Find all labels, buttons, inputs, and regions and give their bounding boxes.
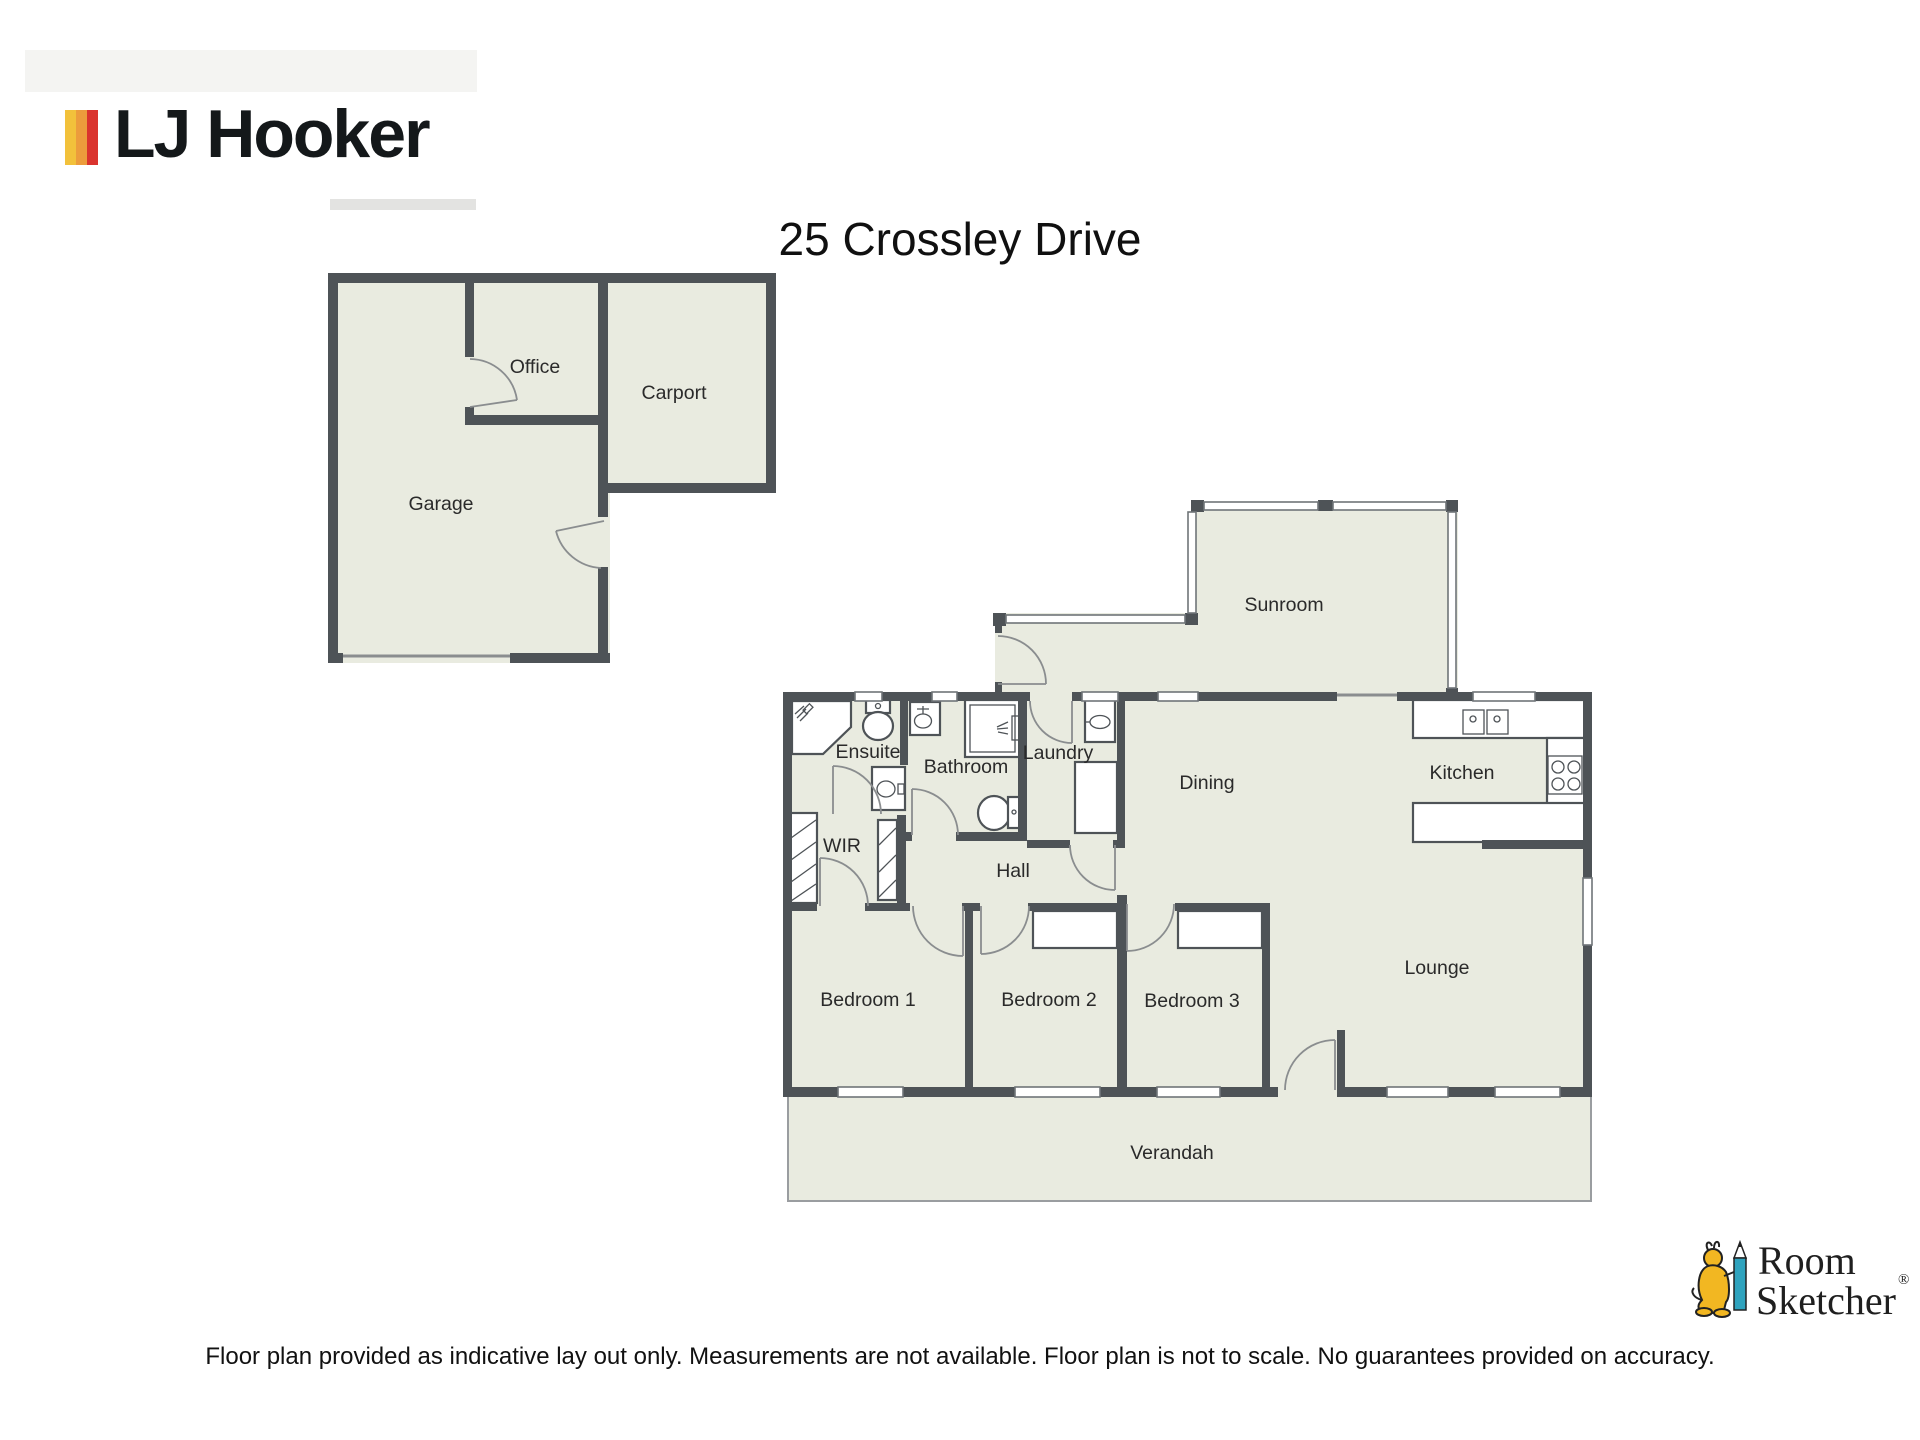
bedroom3-closet [1178,911,1262,948]
window-ensuite [855,692,882,701]
room-label-laundry: Laundry [1023,742,1094,764]
roomsketcher-character-icon [1692,1242,1734,1317]
room-label-verandah: Verandah [1130,1142,1214,1164]
room-label-sunroom: Sunroom [1244,594,1323,616]
window-sunroom-top-1 [1204,502,1318,510]
room-label-dining: Dining [1179,772,1234,794]
shower-icon [965,700,1020,757]
window-sunroom-top-2 [1333,502,1446,510]
room-sunroom-tall [1191,502,1458,700]
room-label-hall: Hall [996,860,1030,882]
room-label-lounge: Lounge [1404,957,1469,979]
roomsketcher-logo: Room Sketcher ® [1686,1232,1916,1332]
toilet-icon [863,700,893,740]
disclaimer-text: Floor plan provided as indicative lay ou… [0,1343,1920,1371]
window-dining [1158,692,1198,701]
room-label-kitchen: Kitchen [1429,762,1494,784]
registered-mark: ® [1898,1272,1909,1288]
laundry-tub-icon [1085,700,1115,742]
window-laundry [1082,692,1118,701]
room-label-bathroom: Bathroom [924,756,1009,778]
roomsketcher-text-line1: Room [1758,1238,1856,1283]
roomsketcher-text-line2: Sketcher [1756,1278,1896,1323]
floor-plates [328,273,1592,1202]
wardrobe-icon [790,813,817,903]
basin-icon [910,702,940,735]
window-bedroom1 [838,1087,903,1097]
room-label-bedroom2: Bedroom 2 [1001,989,1096,1011]
window-lounge-1 [1387,1087,1448,1097]
room-label-ensuite: Ensuite [835,741,900,763]
room-sunroom-strip [995,613,1195,700]
window-lounge-2 [1495,1087,1560,1097]
room-label-garage: Garage [408,493,473,515]
kitchen-counter-top [1413,700,1585,738]
window-bedroom3 [1157,1087,1220,1097]
sink-icon [872,767,905,810]
bedroom2-closet [1033,911,1117,948]
room-label-wir: WIR [823,835,861,857]
kitchen-bench [1413,803,1587,842]
floorplan-page: LJ Hooker 25 Crossley Drive [0,0,1920,1440]
laundry-bench [1075,762,1117,833]
toilet-icon [978,796,1020,830]
room-label-bedroom3: Bedroom 3 [1144,990,1239,1012]
roomsketcher-pencil-icon [1734,1242,1746,1310]
window-bedroom2 [1015,1087,1100,1097]
wardrobe-icon [878,820,897,900]
window-kitchen [1473,692,1535,701]
floor-plan-canvas: Garage Office Carport Sunroom Ensuite Ba… [0,0,1920,1440]
window-bathroom [932,692,957,701]
window-sunroom-right [1448,512,1456,688]
room-label-office: Office [510,356,561,378]
window-sunroom-left [1188,512,1196,613]
kitchen-counter-side [1547,738,1585,813]
window-right-wall [1583,878,1592,945]
room-label-carport: Carport [641,382,707,404]
window-sunroom-strip [1006,615,1185,623]
room-label-bedroom1: Bedroom 1 [820,989,915,1011]
